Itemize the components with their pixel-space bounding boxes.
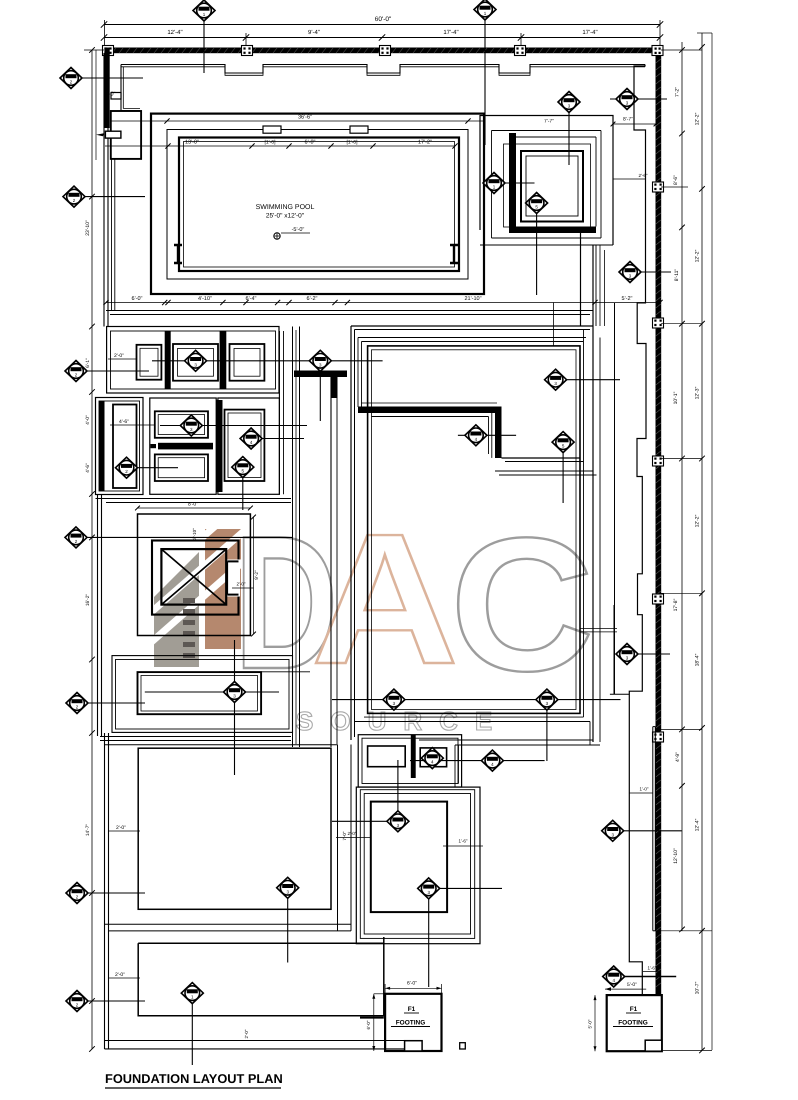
svg-text:17'-4": 17'-4" — [582, 29, 597, 36]
svg-text:7'-0": 7'-0" — [342, 831, 347, 840]
svg-text:12'-10": 12'-10" — [673, 848, 679, 864]
svg-text:9'-4": 9'-4" — [308, 29, 320, 36]
svg-text:12'-2": 12'-2" — [695, 249, 701, 262]
svg-text:8'-6": 8'-6" — [673, 175, 679, 185]
svg-text:FOOTING: FOOTING — [618, 1020, 648, 1027]
svg-text:14'-7": 14'-7" — [85, 824, 91, 837]
svg-text:13'-0": 13'-0" — [185, 140, 199, 146]
svg-text:5'-2": 5'-2" — [622, 296, 633, 302]
svg-text:60'-0": 60'-0" — [375, 16, 392, 23]
svg-text:2'-0": 2'-0" — [348, 831, 357, 836]
svg-text:12'-2": 12'-2" — [695, 514, 701, 527]
svg-text:2'-0": 2'-0" — [105, 92, 116, 98]
svg-text:6'-4": 6'-4" — [246, 296, 257, 302]
svg-text:2'-0": 2'-0" — [116, 825, 126, 831]
svg-text:36'-6": 36'-6" — [298, 115, 312, 121]
svg-text:6'-0": 6'-0" — [132, 296, 143, 302]
svg-text:5'-0": 5'-0" — [627, 982, 637, 988]
svg-text:16'-2": 16'-2" — [85, 594, 91, 607]
svg-text:6'-1": 6'-1" — [85, 358, 91, 368]
svg-text:9'-2": 9'-2" — [254, 570, 260, 580]
svg-text:8'-7": 8'-7" — [623, 117, 633, 123]
svg-text:2'-0": 2'-0" — [237, 582, 246, 587]
svg-text:1'-6": 1'-6" — [459, 839, 468, 844]
svg-text:6'-0": 6'-0" — [407, 981, 417, 987]
svg-text:FOUNDATION LAYOUT PLAN: FOUNDATION LAYOUT PLAN — [105, 1071, 283, 1086]
svg-text:SWIMMING POOL: SWIMMING POOL — [256, 204, 315, 211]
svg-text:A: A — [311, 496, 459, 703]
svg-text:3'-10": 3'-10" — [192, 528, 197, 540]
svg-text:8'-11": 8'-11" — [674, 269, 680, 282]
svg-text:1'-6": 1'-6" — [648, 966, 657, 971]
svg-text:10'-7": 10'-7" — [695, 981, 701, 994]
svg-text:C: C — [450, 499, 594, 711]
svg-text:8'-0": 8'-0" — [188, 502, 198, 508]
svg-text:12'-4": 12'-4" — [695, 818, 701, 831]
svg-text:6'-0": 6'-0" — [366, 1020, 371, 1029]
svg-text:17'-2": 17'-2" — [418, 140, 432, 146]
svg-text:FOOTING: FOOTING — [396, 1020, 426, 1027]
svg-text:2'-0": 2'-0" — [244, 1029, 249, 1038]
svg-text:7'-2": 7'-2" — [675, 87, 681, 97]
svg-text:[1'-6]: [1'-6] — [265, 140, 277, 146]
svg-text:2'-0": 2'-0" — [115, 972, 125, 978]
svg-text:25'-0" x12'-0": 25'-0" x12'-0" — [266, 213, 305, 220]
svg-text:6'-0": 6'-0" — [305, 140, 316, 146]
svg-text:7'-7": 7'-7" — [544, 119, 554, 125]
svg-text:12'-2": 12'-2" — [695, 112, 701, 125]
svg-text:6'-2": 6'-2" — [307, 296, 318, 302]
svg-text:4'-9": 4'-9" — [675, 752, 681, 762]
svg-text:1'-0": 1'-0" — [640, 787, 649, 792]
svg-text:12'-4": 12'-4" — [167, 29, 182, 36]
svg-text:[1'-6]: [1'-6] — [347, 140, 359, 146]
svg-text:4'-10": 4'-10" — [198, 296, 212, 302]
svg-text:5'-0": 5'-0" — [588, 1019, 593, 1028]
svg-text:18'-4": 18'-4" — [695, 653, 701, 666]
svg-text:2'-0": 2'-0" — [114, 353, 124, 359]
svg-text:-5'-0": -5'-0" — [292, 227, 305, 233]
svg-text:12'-3": 12'-3" — [695, 386, 701, 399]
svg-text:10'-1": 10'-1" — [673, 391, 679, 404]
svg-text:21'-10": 21'-10" — [464, 296, 481, 302]
svg-text:4'-6": 4'-6" — [119, 419, 129, 425]
svg-text:4'-6": 4'-6" — [85, 463, 91, 473]
svg-text:F1: F1 — [408, 1006, 416, 1013]
svg-text:2'-6": 2'-6" — [639, 173, 648, 178]
svg-text:F1: F1 — [630, 1006, 638, 1013]
svg-text:17'-4": 17'-4" — [443, 29, 458, 36]
svg-text:4'-0": 4'-0" — [85, 415, 91, 425]
svg-text:17'-8": 17'-8" — [673, 598, 679, 611]
svg-text:SOURCE: SOURCE — [296, 706, 509, 736]
svg-text:23'-10": 23'-10" — [85, 220, 91, 236]
